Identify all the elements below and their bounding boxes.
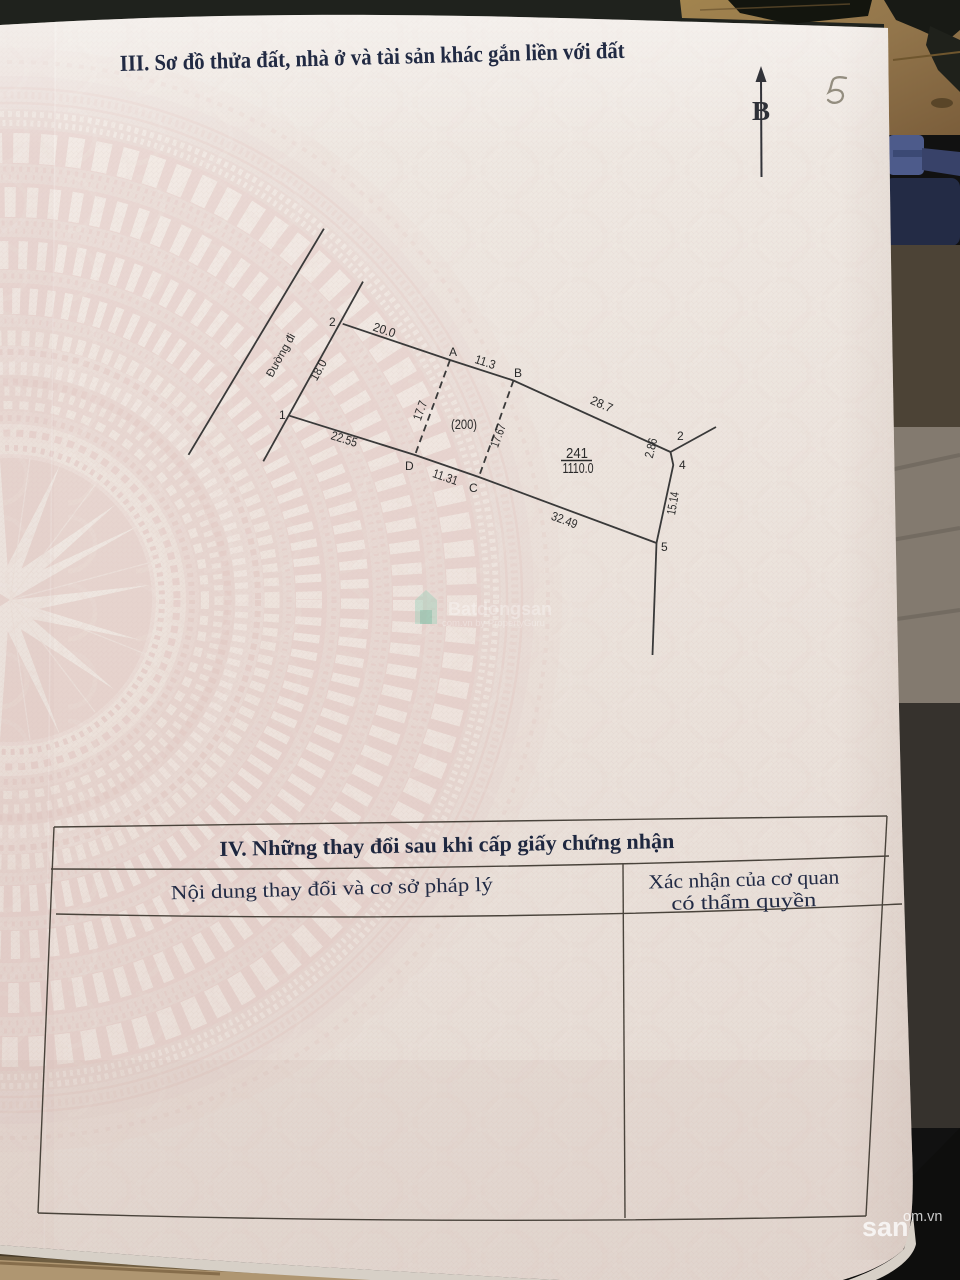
svg-text:có thẩm quyền: có thẩm quyền	[671, 889, 817, 915]
svg-text:Batdongsan: Batdongsan	[448, 599, 552, 619]
svg-text:B: B	[752, 96, 770, 126]
svg-text:(200): (200)	[451, 417, 477, 432]
svg-text:com.vn by PropertyGuru: com.vn by PropertyGuru	[442, 618, 545, 629]
svg-text:D: D	[405, 459, 414, 473]
svg-text:4: 4	[679, 458, 686, 472]
svg-text:2: 2	[677, 429, 684, 443]
svg-text:2: 2	[329, 315, 336, 329]
svg-text:5: 5	[661, 540, 668, 554]
svg-text:B: B	[514, 366, 522, 380]
svg-text:1110.0: 1110.0	[563, 461, 594, 477]
svg-text:1: 1	[279, 408, 286, 422]
svg-text:241: 241	[566, 446, 588, 462]
svg-text:san: san	[862, 1212, 909, 1242]
svg-text:C: C	[469, 481, 478, 495]
svg-text:A: A	[449, 345, 457, 359]
svg-text:om.vn: om.vn	[903, 1209, 943, 1225]
